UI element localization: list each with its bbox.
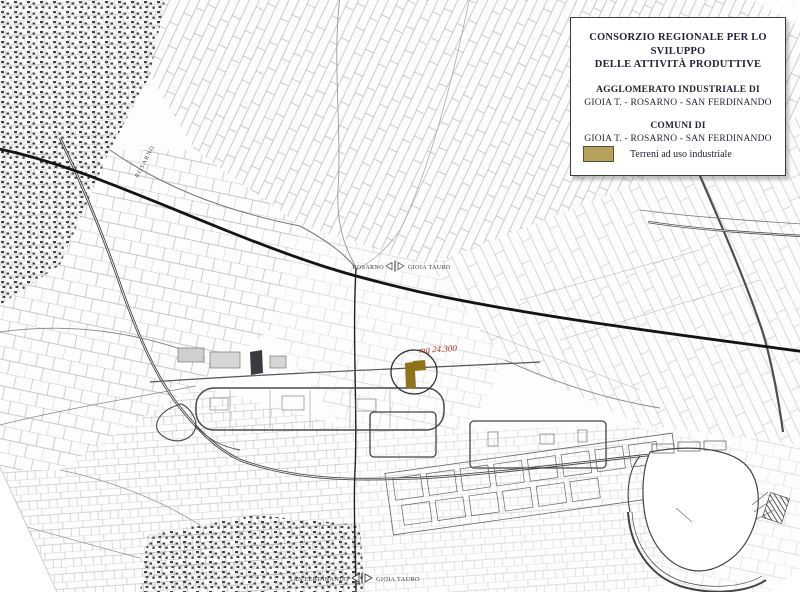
area-label: mq 24.300	[419, 343, 458, 355]
consortium-title: CONSORZIO REGIONALE PER LO SVILUPPO DELL…	[571, 31, 785, 72]
legend-swatch	[583, 146, 614, 162]
boundary-marker-bottom-right: GIOIA TAURO	[376, 576, 420, 583]
consortium-title-line2: DELLE ATTIVITÀ PRODUTTIVE	[571, 58, 785, 72]
boundary-marker-mid-right: GIOIA TAURO	[408, 265, 451, 271]
agglomerato-heading: AGGLOMERATO INDUSTRIALE DI	[571, 85, 785, 95]
comuni-list: GIOIA T. - ROSARNO - SAN FERDINANDO	[571, 134, 785, 144]
consortium-title-line1: CONSORZIO REGIONALE PER LO SVILUPPO	[571, 31, 785, 58]
legend-label: Terreni ad uso industriale	[630, 149, 732, 160]
comuni-heading: COMUNI DI	[571, 121, 785, 131]
legend-box: CONSORZIO REGIONALE PER LO SVILUPPO DELL…	[570, 17, 786, 176]
boundary-marker-mid-left: ROSARNO	[353, 265, 385, 271]
dark-building	[250, 350, 263, 375]
boundary-marker-bottom-left: SAN FERDINANDO	[289, 576, 349, 583]
map-sheet: mq 24.300 ROSARNO ROSARNO GIOIA TAURO SA…	[0, 0, 800, 592]
legend-row: Terreni ad uso industriale	[583, 146, 732, 162]
agglomerato-comuni: GIOIA T. - ROSARNO - SAN FERDINANDO	[571, 98, 785, 108]
